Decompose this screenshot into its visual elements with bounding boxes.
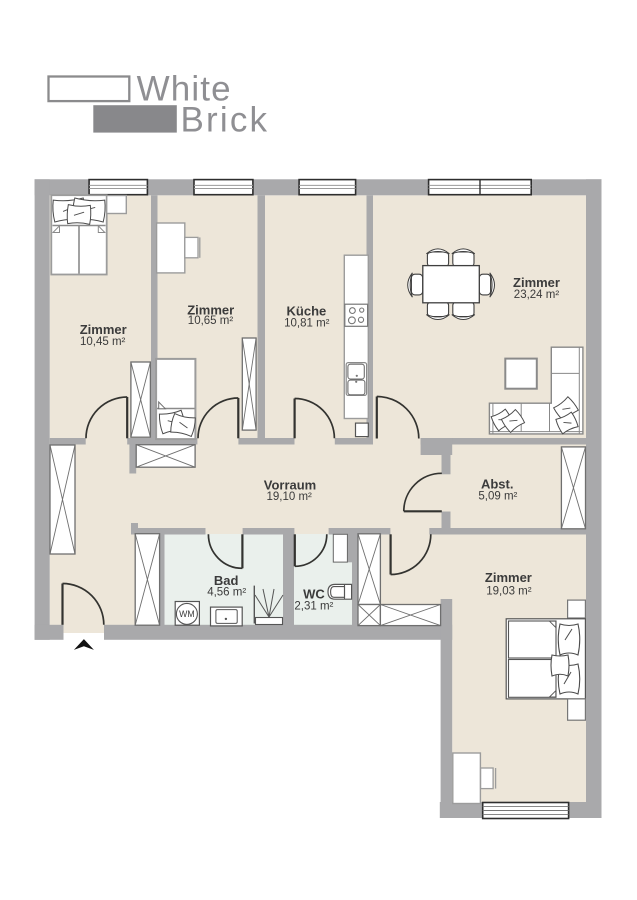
svg-text:19,03 m²: 19,03 m² (486, 586, 532, 598)
svg-text:Bad: Bad (214, 573, 239, 588)
svg-text:5,09 m²: 5,09 m² (478, 491, 517, 503)
svg-text:WC: WC (303, 586, 325, 601)
svg-text:Abst.: Abst. (481, 477, 514, 492)
svg-text:2,31 m²: 2,31 m² (294, 601, 333, 613)
svg-text:WM: WM (179, 609, 195, 619)
svg-text:10,45 m²: 10,45 m² (80, 336, 126, 348)
svg-text:23,24 m²: 23,24 m² (514, 289, 560, 301)
svg-text:19,10 m²: 19,10 m² (267, 491, 313, 503)
svg-text:Zimmer: Zimmer (485, 570, 532, 585)
svg-text:10,81 m²: 10,81 m² (284, 318, 330, 330)
svg-text:Zimmer: Zimmer (80, 322, 127, 337)
svg-text:10,65 m²: 10,65 m² (188, 315, 234, 327)
svg-text:4,56 m²: 4,56 m² (207, 587, 246, 599)
svg-text:Küche: Küche (287, 303, 327, 318)
svg-text:Brick: Brick (181, 100, 268, 139)
svg-text:Zimmer: Zimmer (513, 275, 560, 290)
